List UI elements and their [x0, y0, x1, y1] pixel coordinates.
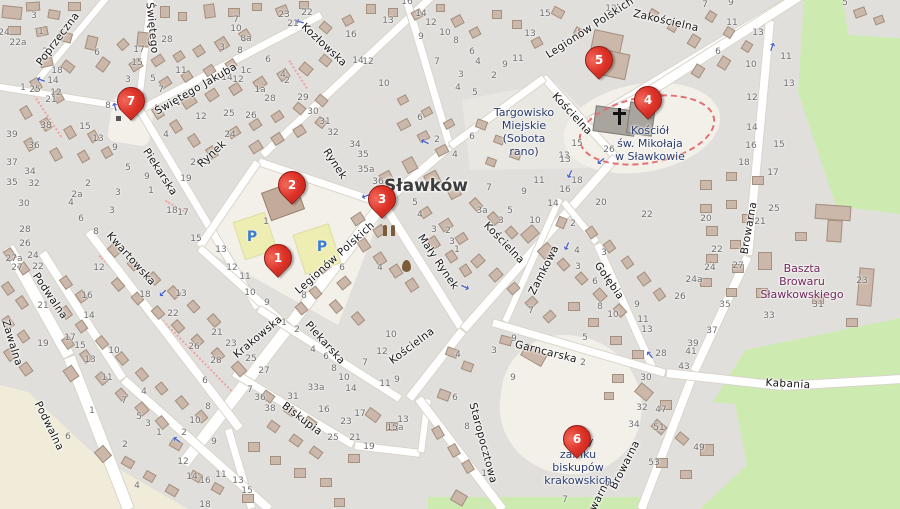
house-number: 6 [339, 263, 345, 273]
house-number: 3 [575, 262, 581, 272]
building [77, 149, 90, 163]
building [341, 14, 354, 27]
house-number: 2 [284, 76, 290, 86]
house-number: 5 [507, 206, 513, 216]
house-number: 21 [349, 433, 360, 443]
house-number: 10 [230, 24, 241, 34]
house-number: 18 [199, 500, 210, 509]
house-number: 5 [472, 88, 478, 98]
house-number: 29 [297, 93, 308, 103]
house-number: 4 [417, 210, 423, 220]
house-number: 1 [263, 217, 269, 227]
house-number: 51 [653, 423, 664, 433]
house-number: 12 [93, 263, 104, 273]
poi-label-line: Browaru [760, 275, 843, 288]
house-number: 16 [345, 30, 356, 40]
building [270, 110, 284, 124]
map-marker-number: 7 [118, 88, 144, 114]
building [169, 119, 183, 134]
building [741, 40, 754, 53]
house-number: 4 [452, 150, 458, 160]
building [717, 55, 732, 70]
house-number: 11 [175, 66, 186, 76]
house-number: 18 [738, 158, 749, 168]
house-number: 17 [177, 208, 188, 218]
building [266, 420, 280, 434]
house-number: 5 [842, 0, 848, 8]
house-number: 9 [211, 437, 217, 447]
house-number: 21 [211, 328, 222, 338]
house-number: 6 [265, 55, 271, 65]
house-number: 18 [571, 176, 582, 186]
house-number: 7 [562, 495, 568, 505]
house-number: 11 [215, 470, 226, 480]
poi-label-line: św. Mikołaja [615, 137, 685, 150]
oneway-arrow-icon: → [458, 279, 472, 295]
house-number: 4 [163, 130, 169, 140]
building [192, 44, 206, 58]
building [492, 10, 502, 19]
building [397, 118, 412, 132]
house-number: 1 [20, 83, 26, 93]
house-number: 7 [434, 57, 440, 67]
building [289, 433, 304, 447]
house-number: 22a [10, 38, 27, 48]
house-number: 9 [112, 143, 118, 153]
house-number: 27 [258, 366, 269, 376]
house-number: 25 [245, 354, 256, 364]
house-number: 35 [6, 178, 17, 188]
memorial-icon [116, 116, 121, 121]
house-number: 12 [226, 263, 237, 273]
house-number: 17 [354, 409, 365, 419]
building [294, 468, 306, 478]
house-number: 15 [571, 139, 582, 149]
building [826, 220, 842, 243]
house-number: 24 [224, 130, 235, 140]
house-number: 3 [125, 75, 131, 85]
cross-vertical-bar [618, 108, 621, 125]
house-number: 34 [349, 140, 360, 150]
building [636, 271, 651, 287]
building [1, 5, 22, 20]
house-number: 14 [345, 384, 356, 394]
poi-label-line: Baszta [760, 262, 843, 275]
house-number: 20 [700, 214, 711, 224]
house-number: 8 [93, 227, 99, 237]
building [459, 263, 473, 277]
building [461, 360, 474, 372]
house-number: 10 [378, 79, 389, 89]
house-number: 6 [592, 277, 598, 287]
house-number: 20 [595, 198, 606, 208]
house-number: 53 [648, 458, 659, 468]
house-number: 9 [264, 298, 270, 308]
building [687, 33, 702, 48]
house-number: 10 [607, 310, 618, 320]
building [556, 257, 570, 271]
building [568, 302, 580, 311]
house-number: 9 [634, 300, 640, 310]
house-number: 16 [199, 476, 210, 486]
building [700, 204, 712, 213]
poi-label-baszta: BasztaBrowaruSławkowskiego [760, 262, 843, 301]
house-number: 10 [189, 416, 200, 426]
house-number: 28 [19, 225, 30, 235]
house-number: 13 [175, 289, 186, 299]
building [621, 255, 635, 269]
house-number: 9 [510, 373, 516, 383]
house-number: 22 [167, 309, 178, 319]
building [68, 2, 81, 11]
house-number: 9 [418, 32, 424, 42]
church-cross-icon [612, 108, 626, 126]
street-label: Zakościelna [632, 8, 700, 35]
house-number: 5 [136, 412, 142, 422]
house-number: 2 [445, 226, 451, 236]
house-number: 7 [528, 306, 534, 316]
house-number: 3 [109, 206, 115, 216]
house-number: 24a [686, 275, 703, 285]
house-number: 8 [597, 302, 603, 312]
building [17, 329, 31, 343]
cross-horizontal-bar [613, 112, 626, 115]
building [160, 6, 170, 18]
house-number: 41 [685, 347, 696, 357]
fireplace-icon [402, 260, 411, 272]
building [186, 299, 200, 313]
house-number: 37 [6, 158, 17, 168]
house-number: 7 [233, 15, 239, 25]
building [795, 232, 807, 241]
building [706, 226, 718, 236]
house-number: 25 [223, 109, 234, 119]
house-number: 33a [308, 383, 325, 393]
house-number: 6 [469, 47, 475, 57]
house-number: 25 [327, 433, 338, 443]
building [873, 15, 885, 26]
house-number: 22 [301, 8, 312, 18]
house-number: 31 [319, 117, 330, 127]
house-number: 12 [232, 75, 243, 85]
house-number: 13 [232, 476, 243, 486]
house-number: 38 [264, 404, 275, 414]
building [203, 3, 216, 18]
house-number: 3 [601, 248, 607, 258]
building [348, 454, 360, 463]
building [121, 456, 136, 470]
house-number: 13 [559, 155, 570, 165]
house-number: 8 [331, 364, 337, 374]
house-number: 5 [125, 163, 131, 173]
building [318, 21, 332, 35]
house-number: 30 [307, 107, 318, 117]
house-number: 14 [746, 123, 757, 133]
building [364, 407, 381, 423]
house-number: 11 [533, 176, 544, 186]
house-number: 47 [655, 405, 666, 415]
map-marker-number: 6 [564, 426, 590, 452]
house-number: 25 [29, 85, 40, 95]
house-number: 18 [51, 66, 62, 76]
house-number: 17 [767, 168, 778, 178]
house-number: 10 [745, 60, 756, 70]
building [351, 311, 366, 326]
map-marker-number: 1 [265, 245, 291, 271]
house-number: 3 [31, 11, 37, 21]
building [61, 59, 76, 73]
house-number: 21 [45, 95, 56, 105]
building [653, 287, 667, 301]
house-number: 4 [310, 345, 316, 355]
house-number: 6 [65, 432, 71, 442]
house-number: 11 [379, 379, 390, 389]
street-label: Rynek [321, 146, 350, 181]
house-number: 13 [215, 245, 226, 255]
building [63, 125, 77, 140]
building [726, 200, 737, 209]
house-number: 2 [570, 219, 576, 229]
house-number: 28 [161, 35, 172, 45]
house-number: 15 [79, 122, 90, 132]
building [574, 271, 588, 285]
house-number: 7 [702, 0, 708, 10]
house-number: 14 [83, 311, 94, 321]
house-number: 21 [287, 19, 298, 29]
street-label: Kościelna [481, 220, 526, 266]
house-number: 11 [512, 54, 523, 64]
building [252, 3, 262, 11]
house-number: 2 [181, 428, 187, 438]
house-number: 27 [11, 263, 22, 273]
house-number: 3 [219, 43, 225, 53]
house-number: 15 [131, 58, 142, 68]
house-number: 4 [68, 198, 74, 208]
house-number: 11 [726, 18, 737, 28]
building [210, 482, 224, 495]
building [726, 288, 737, 297]
house-number: 3 [491, 346, 497, 356]
house-number: 26 [19, 239, 30, 249]
house-number: 1 [454, 245, 460, 255]
parking-icon: P [247, 229, 257, 245]
house-number: 6 [417, 113, 423, 123]
house-number: 12 [195, 112, 206, 122]
house-number: 3 [431, 225, 437, 235]
house-number: 3 [145, 419, 151, 429]
house-number: 8a [240, 34, 251, 44]
house-number: 34 [24, 167, 35, 177]
building [588, 318, 599, 327]
house-number: 28 [210, 356, 221, 366]
house-number: 3a [476, 206, 487, 216]
poi-label-line: rano) [494, 145, 554, 158]
house-number: 26 [674, 292, 685, 302]
house-number: 6 [202, 376, 208, 386]
house-number: 7 [121, 396, 127, 406]
house-number: 16 [401, 0, 412, 7]
building [320, 478, 332, 487]
house-number: 28 [264, 94, 275, 104]
building [165, 484, 180, 498]
house-number: 3 [458, 70, 464, 80]
house-number: 12 [746, 93, 757, 103]
house-number: 6 [452, 393, 458, 403]
street-label: Zawalna [0, 319, 25, 368]
house-number: 9 [521, 187, 527, 197]
building [248, 442, 260, 452]
house-number: 32 [327, 128, 338, 138]
house-number: 4 [377, 263, 383, 273]
house-number: 33 [763, 311, 774, 321]
house-number: 36 [28, 141, 39, 151]
house-number: 24 [704, 263, 715, 273]
building [366, 4, 376, 14]
house-number: 1 [89, 406, 95, 416]
house-number: 12 [376, 347, 387, 357]
house-number: 15 [241, 486, 252, 496]
house-number: 16 [318, 405, 329, 415]
building [175, 395, 190, 410]
building [187, 133, 201, 148]
house-number: 16 [745, 141, 756, 151]
house-number: 5 [150, 74, 156, 84]
house-number: 7 [362, 358, 368, 368]
house-number: 19 [37, 339, 48, 349]
house-number: 37 [706, 326, 717, 336]
building [116, 38, 129, 51]
house-number: 31 [287, 392, 298, 402]
house-number: 19 [363, 442, 374, 452]
house-number: 15a [387, 423, 404, 433]
house-number: 27 [732, 261, 743, 271]
building [309, 445, 324, 459]
house-number: 25 [768, 204, 779, 214]
house-number: 4 [134, 481, 140, 491]
building [270, 456, 281, 465]
place-label-slawkow: Sławków [384, 176, 468, 196]
building [142, 470, 156, 483]
house-number: 11 [780, 52, 791, 62]
house-number: 15 [74, 341, 85, 351]
building [551, 6, 566, 20]
house-number: 22 [711, 245, 722, 255]
house-number: 6 [469, 132, 475, 142]
house-number: 23 [856, 276, 867, 286]
house-number: 38 [40, 121, 51, 131]
house-number: 14 [547, 199, 558, 209]
building [705, 10, 718, 23]
building [207, 313, 222, 328]
building [612, 374, 624, 383]
building [436, 4, 445, 12]
building [1, 281, 15, 296]
building [726, 172, 737, 181]
building [151, 53, 166, 67]
building [706, 254, 718, 263]
house-number: 36 [254, 393, 265, 403]
house-number: 13 [92, 134, 103, 144]
building [592, 287, 607, 303]
house-number: 1 [156, 428, 162, 438]
building [397, 94, 410, 106]
house-number: 14 [47, 76, 58, 86]
house-number: 9 [502, 60, 508, 70]
poi-label-line: (Sobota [494, 132, 554, 145]
house-number: 18 [139, 290, 150, 300]
house-number: 2 [122, 440, 128, 450]
house-number: 13 [84, 355, 95, 365]
building [49, 147, 63, 162]
building [700, 180, 712, 190]
house-number: 18 [166, 206, 177, 216]
house-number: 2 [434, 135, 440, 145]
house-number: 7 [247, 385, 253, 395]
house-number: 31 [812, 300, 823, 310]
poi-label-line: biskupów [544, 461, 612, 474]
house-number: 5 [582, 333, 588, 343]
house-number: 32 [636, 403, 647, 413]
house-number: 17 [133, 45, 144, 55]
building [856, 267, 874, 306]
house-number: 10 [385, 330, 396, 340]
house-number: 16 [81, 291, 92, 301]
building [604, 392, 614, 400]
map-marker-number: 5 [586, 47, 612, 73]
building [47, 9, 60, 20]
house-number: 26 [188, 342, 199, 352]
house-number: 30 [640, 373, 651, 383]
map-canvas[interactable]: Sławków PP→→→→→→→→→→→→→2422a312181412617… [0, 0, 900, 509]
building [468, 26, 481, 39]
house-number: 10 [338, 373, 349, 383]
building [853, 6, 867, 19]
house-number: 4 [475, 57, 481, 67]
house-number: 2 [580, 358, 586, 368]
house-number: 2 [294, 325, 300, 335]
house-number: 9 [394, 375, 400, 385]
building [542, 309, 556, 323]
poi-label-line: Sławkowskiego [760, 288, 843, 301]
poi-label-line: w Sławkowie [615, 150, 685, 163]
building [19, 105, 33, 120]
house-number: 11 [101, 373, 112, 383]
building [135, 367, 150, 382]
building [334, 498, 345, 507]
map-marker-number: 3 [369, 186, 395, 212]
house-number: 10 [244, 288, 255, 298]
house-number: 8 [105, 101, 111, 111]
house-number: 2 [85, 179, 91, 189]
house-number: 4 [455, 83, 461, 93]
house-number: 13 [783, 79, 794, 89]
house-number: 32 [28, 179, 39, 189]
street-label: Kabania [765, 377, 811, 391]
poi-label-line: Miejskie [494, 119, 554, 132]
house-number: 35 [357, 150, 368, 160]
building [15, 295, 29, 310]
house-number: 1c [241, 66, 252, 76]
house-number: 26 [245, 111, 256, 121]
building [815, 204, 852, 221]
house-number: 24 [27, 251, 38, 261]
house-number: 12 [177, 457, 188, 467]
house-number: 7 [486, 183, 492, 193]
poi-label-line: Targowisko [494, 106, 554, 119]
poi-label-line: krakowskich [544, 474, 612, 487]
house-number: 28 [655, 349, 666, 359]
house-number: 24 [0, 28, 10, 38]
